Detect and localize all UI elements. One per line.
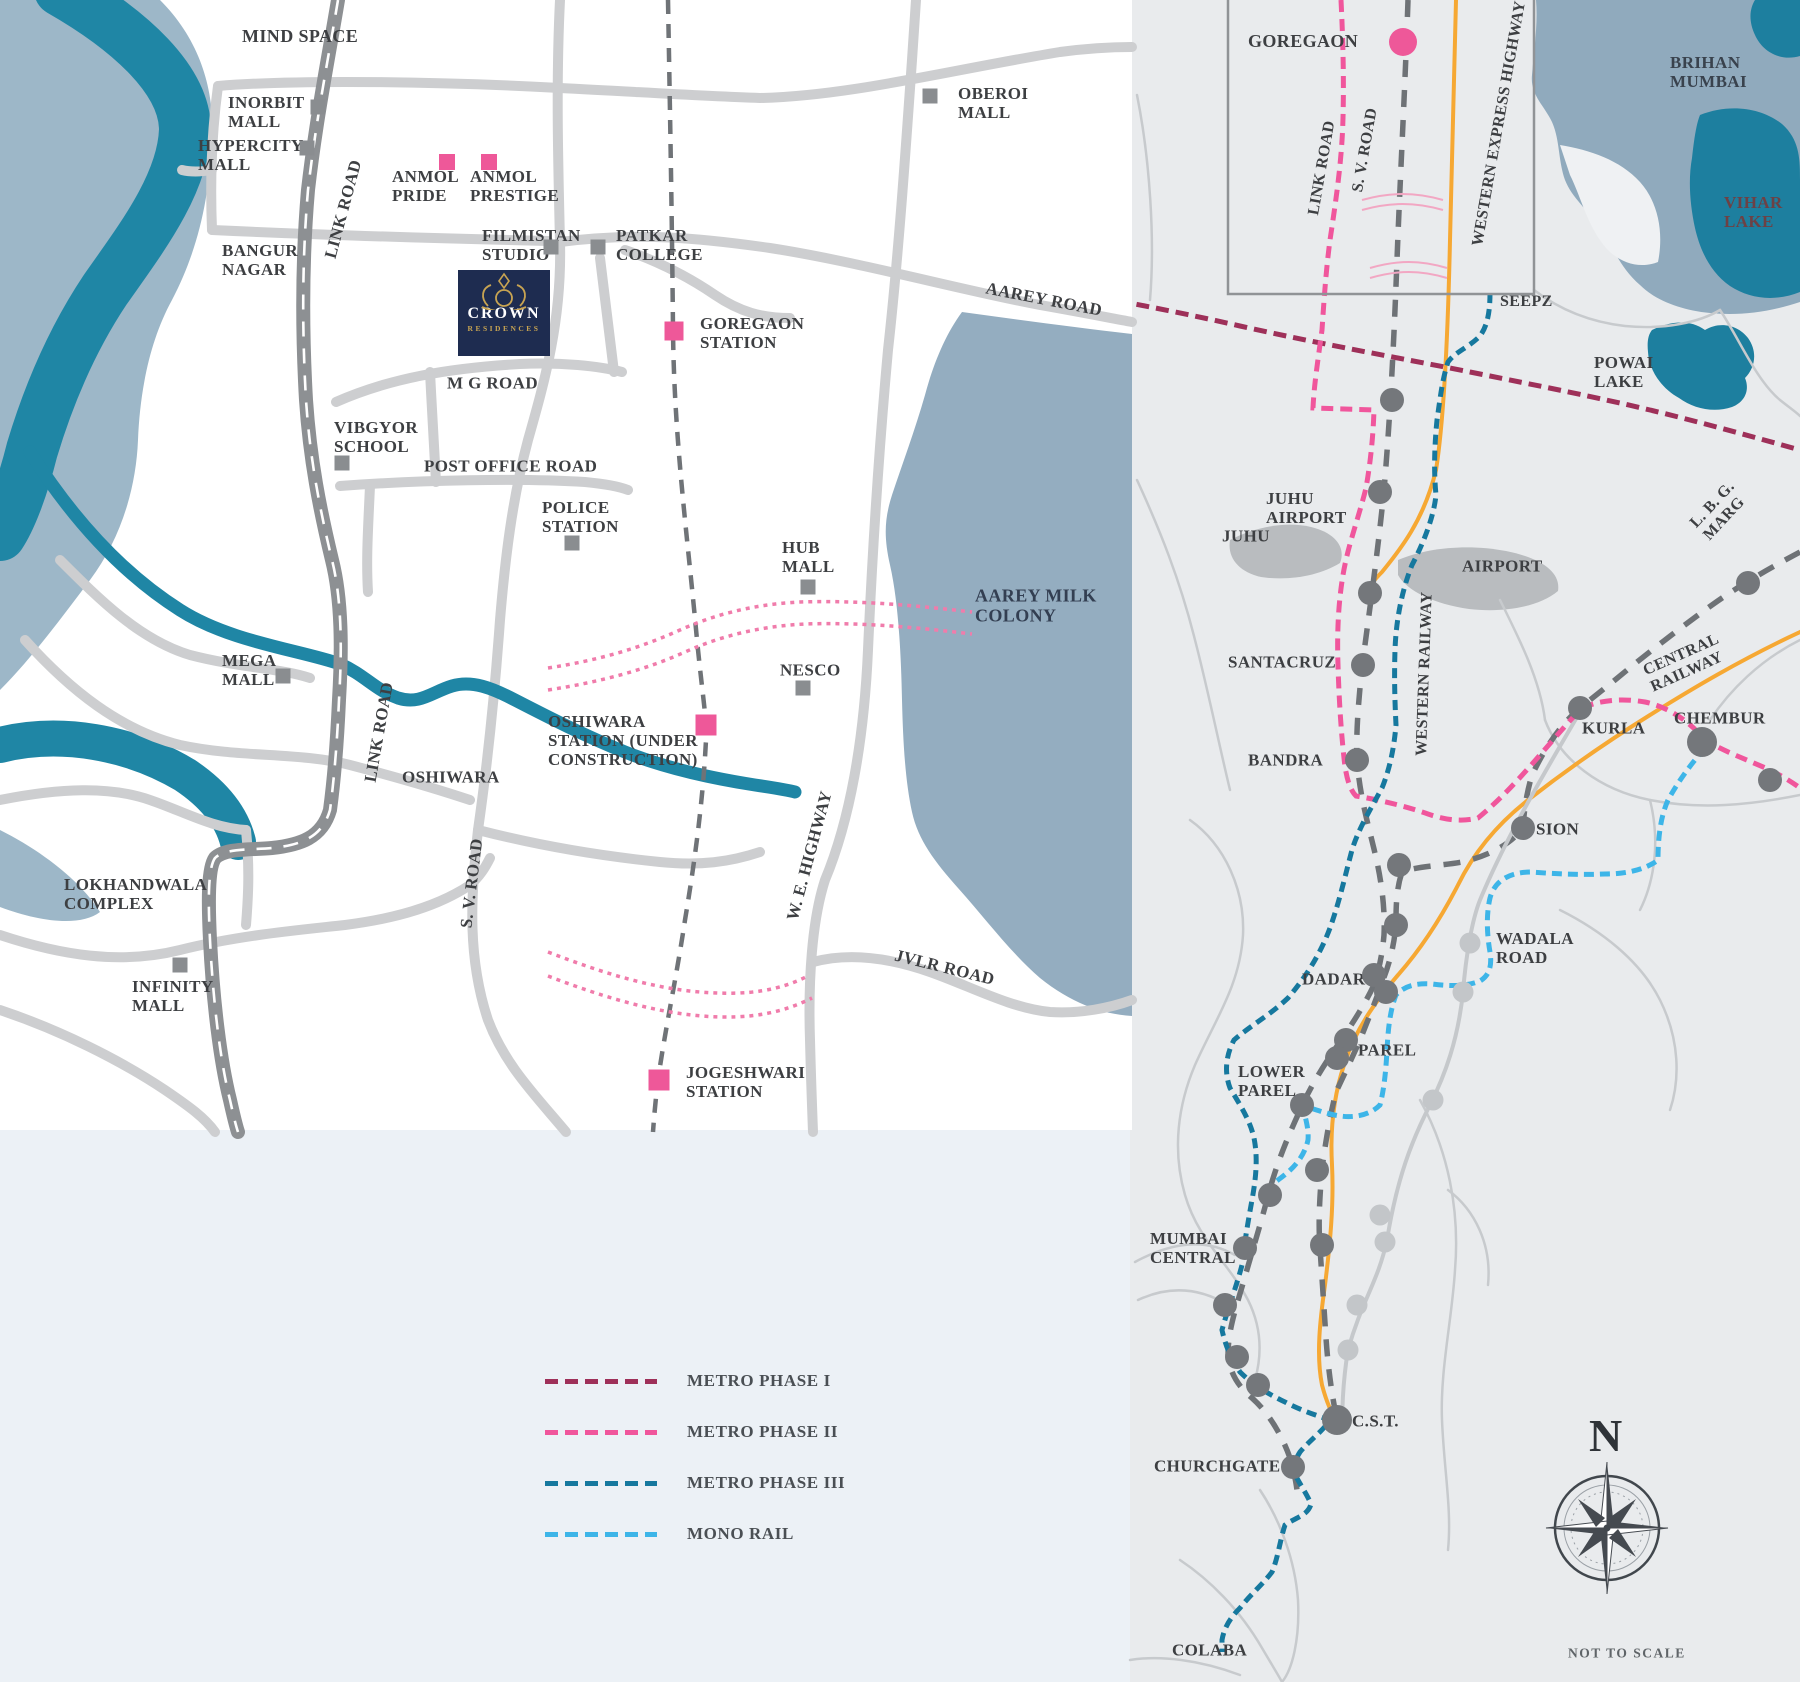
landmark-marker (173, 958, 188, 973)
label-santacruz: SANTACRUZ (1228, 652, 1336, 671)
label-mind-space: MIND SPACE (242, 26, 358, 46)
station-dot-light (1375, 1232, 1396, 1253)
station-dot-light (1338, 1340, 1359, 1361)
label-seepz: SEEPZ (1500, 293, 1553, 311)
station-dot (1387, 853, 1411, 877)
label-jogeshwari-station: JOGESHWARI STATION (686, 1063, 805, 1101)
station-dot (1246, 1373, 1270, 1397)
station-dot (1687, 727, 1717, 757)
label-mega-mall: MEGA MALL (222, 651, 276, 689)
label-anmol-prestige: ANMOL PRESTIGE (470, 167, 559, 205)
label-jvlr-road: JVLR ROAD (893, 946, 997, 989)
station-dot (1351, 653, 1375, 677)
label-lbg-marg: L. B. G. MARG (1687, 447, 1782, 545)
label-oshiwara: OSHIWARA (402, 767, 500, 786)
station-dot (1736, 571, 1760, 595)
station-dot (1290, 1093, 1314, 1117)
label-juhu-airport: JUHU AIRPORT (1266, 489, 1347, 527)
label-we-highway: W. E. HIGHWAY (783, 789, 836, 923)
station-marker-pink (665, 322, 684, 341)
station-marker-pink (439, 154, 455, 170)
landmark-marker (276, 669, 291, 684)
station-dot (1305, 1158, 1329, 1182)
label-parel: PAREL (1358, 1040, 1416, 1059)
label-lokhandwala-complex: LOKHANDWALA COMPLEX (64, 875, 207, 913)
label-chembur: CHEMBUR (1674, 708, 1766, 727)
station-dot-light (1370, 1205, 1391, 1226)
label-wadala-road: WADALA ROAD (1496, 929, 1574, 967)
station-dot (1380, 388, 1404, 412)
station-dot (1322, 1405, 1352, 1435)
landmark-marker (300, 141, 315, 156)
label-aarey-road: AAREY ROAD (984, 279, 1104, 320)
station-dot-light (1423, 1090, 1444, 1111)
project-location-dot (1389, 28, 1417, 56)
label-western-railway: WESTERN RAILWAY (1413, 591, 1437, 756)
label-bandra: BANDRA (1248, 750, 1323, 769)
label-patkar-college: PATKAR COLLEGE (616, 226, 703, 264)
label-goregaon: GOREGAON (1248, 31, 1358, 51)
label-churchgate: CHURCHGATE (1154, 1456, 1280, 1475)
label-inorbit-mall: INORBIT MALL (228, 93, 305, 131)
station-dot (1233, 1236, 1257, 1260)
station-dot (1511, 816, 1535, 840)
label-layer: MIND SPACEINORBIT MALLHYPERCITY MALLBANG… (0, 0, 1800, 1682)
station-dot-light (1460, 933, 1481, 954)
station-dot (1225, 1345, 1249, 1369)
label-sv-road: S. V. ROAD (1349, 107, 1382, 194)
station-dot-light (1347, 1295, 1368, 1316)
landmark-marker (311, 100, 326, 115)
label-post-office-road: POST OFFICE ROAD (424, 456, 597, 475)
station-dot (1213, 1293, 1237, 1317)
label-vibgyor-school: VIBGYOR SCHOOL (334, 418, 418, 456)
station-dot (1568, 696, 1592, 720)
label-oshiwara-station: OSHIWARA STATION (UNDER CONSTRUCTION) (548, 712, 698, 770)
station-dot (1358, 581, 1382, 605)
station-marker-pink (696, 715, 717, 736)
label-anmol-pride: ANMOL PRIDE (392, 167, 459, 205)
landmark-marker (796, 681, 811, 696)
label-airport: AIRPORT (1462, 556, 1543, 575)
label-mg-road: M G ROAD (447, 373, 538, 392)
location-map-screenshot: CROWN RESIDENCES METRO PHASE IMETRO PHAS… (0, 0, 1800, 1682)
label-link-road-upper: LINK ROAD (321, 158, 366, 261)
label-cst: C.S.T. (1352, 1411, 1399, 1430)
station-dot (1368, 480, 1392, 504)
station-dot (1345, 748, 1369, 772)
label-bangur-nagar: BANGUR NAGAR (222, 241, 298, 279)
landmark-marker (335, 456, 350, 471)
label-hub-mall: HUB MALL (782, 538, 835, 576)
landmark-marker (591, 240, 606, 255)
label-western-express-highway: WESTERN EXPRESS HIGHWAY (1469, 0, 1530, 248)
label-hypercity-mall: HYPERCITY MALL (198, 136, 304, 174)
label-vihar-lake: VIHAR LAKE (1724, 193, 1783, 231)
station-dot (1374, 980, 1398, 1004)
label-police-station: POLICE STATION (542, 498, 619, 536)
label-powai-lake: POWAI LAKE (1594, 353, 1654, 391)
label-dadar: DADAR (1302, 969, 1365, 988)
label-link-road: LINK ROAD (1305, 119, 1339, 216)
station-dot (1281, 1455, 1305, 1479)
landmark-marker (544, 240, 559, 255)
landmark-marker (565, 536, 580, 551)
label-sion: SION (1536, 819, 1579, 838)
label-oberoi-mall: OBEROI MALL (958, 84, 1028, 122)
landmark-marker (801, 580, 816, 595)
station-dot (1758, 768, 1782, 792)
label-brihan-mumbai: BRIHAN MUMBAI (1670, 53, 1747, 91)
station-dot (1310, 1233, 1334, 1257)
label-sv-road-left: S. V. ROAD (456, 837, 486, 929)
station-dot (1258, 1183, 1282, 1207)
label-mumbai-central: MUMBAI CENTRAL (1150, 1229, 1236, 1267)
label-juhu: JUHU (1222, 526, 1270, 545)
station-dot (1325, 1046, 1349, 1070)
label-aarey-milk-colony: AAREY MILK COLONY (975, 586, 1097, 627)
station-marker-pink (481, 154, 497, 170)
label-kurla: KURLA (1582, 718, 1645, 737)
label-colaba: COLABA (1172, 1640, 1247, 1659)
label-goregaon-station: GOREGAON STATION (700, 314, 804, 352)
label-infinity-mall: INFINITY MALL (132, 977, 214, 1015)
station-dot (1384, 913, 1408, 937)
label-nesco: NESCO (780, 660, 841, 679)
label-filmistan-studio: FILMISTAN STUDIO (482, 226, 581, 264)
station-marker-pink (649, 1070, 670, 1091)
landmark-marker (923, 89, 938, 104)
station-dot-light (1453, 982, 1474, 1003)
label-link-road-lower: LINK ROAD (361, 681, 398, 784)
label-central-railway: CENTRAL RAILWAY (1641, 602, 1795, 697)
